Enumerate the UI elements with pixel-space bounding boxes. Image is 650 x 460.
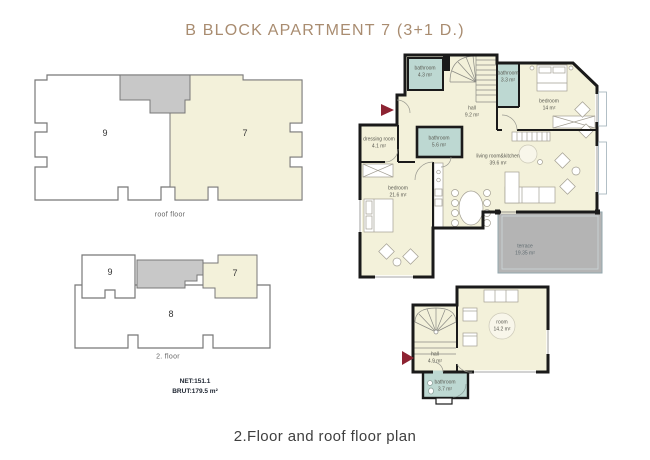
roof-floor-plan [400,280,585,410]
keyplan-2f-unit8-label: 8 [168,309,173,319]
label-bathroom-2: bathroom 3.3 m² [497,71,518,84]
keyplan-roof-unit9-label: 9 [102,128,107,138]
label-bedroom-1: bedroom 14 m² [539,99,559,112]
room-area: 4.9 m² [428,358,442,365]
keyplan-2f-caption: 2. floor [156,354,180,361]
brut-area: BRUT:179.5 m² [120,387,270,397]
room-name: dressing room [363,137,395,144]
area-summary: NET:151.1 BRUT:179.5 m² [120,377,270,397]
entrance-arrow [381,104,394,116]
keyplan-2f-unit7-label: 7 [232,268,237,278]
page-title: B BLOCK APARTMENT 7 (3+1 D.) [0,22,650,40]
keyplan-roof-floor [25,60,315,230]
label-roof-room: room 14.2 m² [494,320,511,333]
room-area: 4.3 m² [414,72,435,79]
sheet-caption: 2.Floor and roof floor plan [0,428,650,445]
label-terrace: terrace 19.35 m² [515,244,535,257]
room-area: 4.1 m² [363,143,395,150]
side-ledges [599,92,607,194]
room-name: living room&kitchen [476,154,519,161]
room-area: 14 m² [539,105,559,112]
keyplan-roof-caption: roof floor [155,212,186,219]
room-area: 14.2 m² [494,326,511,333]
label-bedroom-2: bedroom 21.6 m² [388,186,408,199]
room-name: bathroom [434,380,455,387]
label-bathroom-3: bathroom 5.6 m² [428,136,449,149]
label-roof-hall: hall 4.9 m² [428,352,442,365]
label-hall: hall 9.2 m² [465,106,479,119]
room-area: 9.2 m² [465,112,479,119]
terrace-area [498,212,602,273]
keyplan-roof-unit7-label: 7 [242,128,247,138]
room-name: bedroom [539,99,559,106]
keyplan-2f-core [137,260,203,288]
second-floor-plan [355,50,645,290]
label-roof-bathroom: bathroom 3.7 m² [434,380,455,393]
room-area: 5.6 m² [428,142,449,149]
room-area: 39.6 m² [476,160,519,167]
room-name: bathroom [428,136,449,143]
keyplan-2f-unit9-label: 9 [107,267,112,277]
keyplan-second-floor [60,245,280,370]
room-name: bathroom [497,71,518,78]
room-area: 3.3 m² [497,77,518,84]
net-area: NET:151.1 [120,377,270,387]
room-area: 3.7 m² [434,386,455,393]
floorplan-sheet: B BLOCK APARTMENT 7 (3+1 D.) 9 7 roof fl… [0,0,650,460]
label-dressing-room: dressing room 4.1 m² [363,137,395,150]
room-name: terrace [515,244,535,251]
room-area: 21.6 m² [388,192,408,199]
label-living-room: living room&kitchen 39.6 m² [476,154,519,167]
room-name: bathroom [414,66,435,73]
room-area: 19.35 m² [515,250,535,257]
room-name: bedroom [388,186,408,193]
label-bathroom-1: bathroom 4.3 m² [414,66,435,79]
